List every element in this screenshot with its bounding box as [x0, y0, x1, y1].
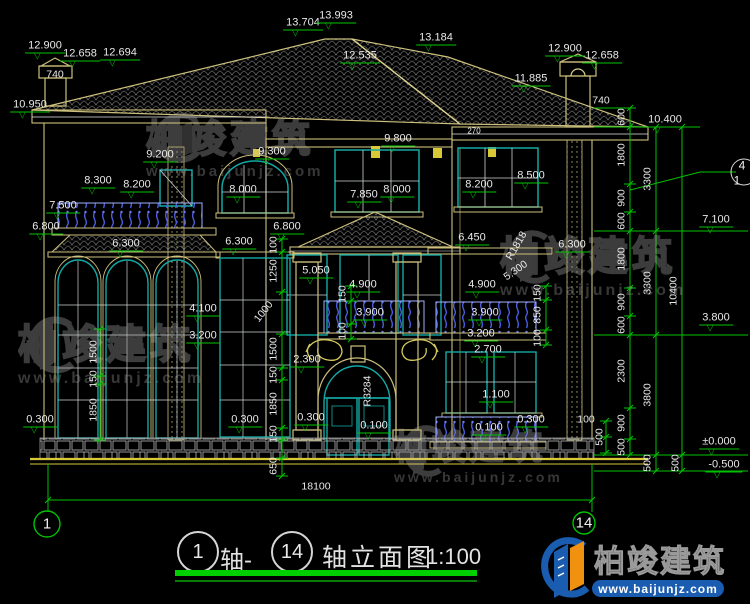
dim-chain: [624, 105, 636, 458]
axis-number: 14: [281, 541, 303, 564]
dim-chain: [94, 326, 106, 443]
title-axis-bubble-1: 1: [177, 531, 219, 573]
dim-chain: [600, 418, 612, 456]
left-chimney: [39, 58, 72, 106]
drawing-title: 轴立面图: [322, 538, 434, 574]
window-upper-left-arched: [216, 155, 294, 218]
dim-chain: [676, 124, 688, 474]
axis-number: 1: [192, 541, 203, 564]
dim-chain: [45, 494, 595, 506]
title-axis-bubble-14: 14: [271, 531, 313, 573]
dim-chain: [650, 124, 662, 474]
brand-name-text: 柏竣建筑: [594, 536, 726, 581]
dim-chain: [540, 283, 552, 348]
center-balcony-railing: [318, 301, 430, 339]
brand-logo-icon: [534, 532, 594, 602]
title-underline-thin: [175, 580, 477, 582]
elevation-drawing: [0, 0, 750, 604]
entrance: [293, 253, 421, 458]
cad-elevation-screenshot: 柏竣建筑 www.baijunjz.com 柏竣建筑 www.baijunjz.…: [0, 0, 750, 604]
title-underline: [175, 570, 477, 576]
brand-url-badge: www.baijunjz.com: [592, 580, 724, 597]
window-upper-center: [331, 150, 423, 217]
right-wing: [430, 302, 546, 448]
stone-base: [30, 438, 648, 464]
main-roof: [32, 39, 648, 127]
left-balcony: [48, 203, 220, 257]
drawing-scale: 1:100: [426, 544, 481, 570]
window-upper-right: [454, 148, 542, 212]
